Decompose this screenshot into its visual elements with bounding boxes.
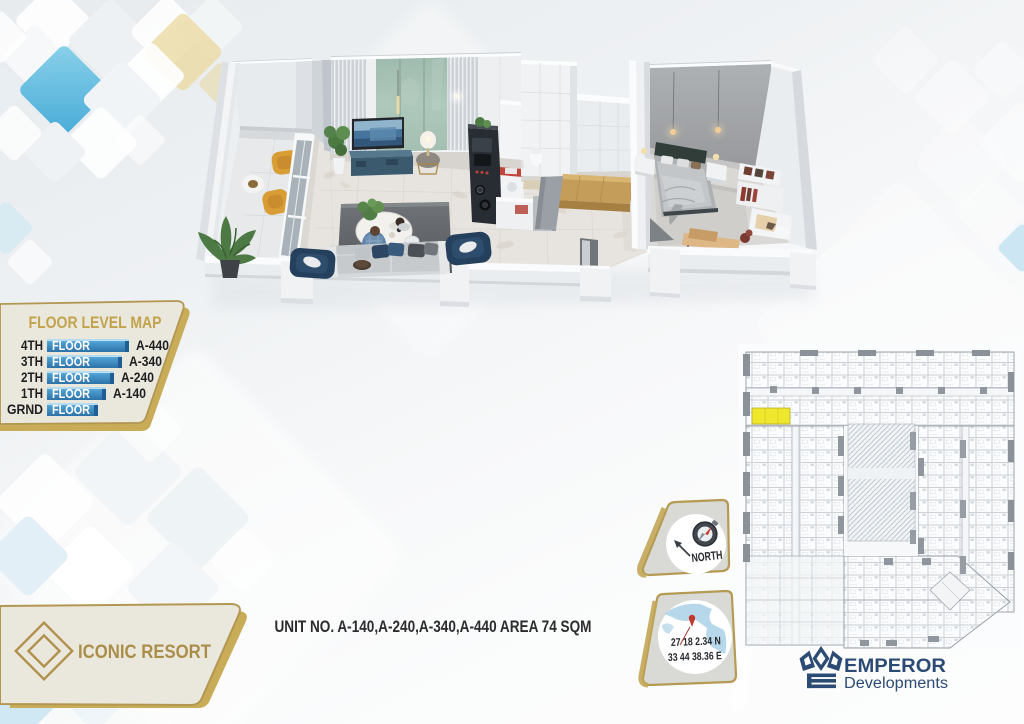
svg-text:A-440: A-440 [136,337,169,353]
svg-text:EMPEROR: EMPEROR [844,656,946,677]
svg-text:FLOOR: FLOOR [52,387,90,401]
svg-text:UNIT NO. A-140,A-240,A-340,A-: UNIT NO. A-140,A-240,A-340,A-440 AREA 74… [275,617,592,636]
svg-text:2TH: 2TH [21,369,43,385]
svg-text:FLOOR LEVEL MAP: FLOOR LEVEL MAP [29,313,162,332]
svg-text:FLOOR: FLOOR [52,371,90,385]
svg-text:A-140: A-140 [113,385,146,401]
svg-text:A-340: A-340 [129,353,162,369]
svg-text:FLOOR: FLOOR [52,339,90,353]
svg-text:33 44 38.36 E: 33 44 38.36 E [668,650,722,664]
svg-text:A-240: A-240 [121,369,154,385]
svg-text:FLOOR: FLOOR [52,355,90,369]
svg-text:GRND: GRND [7,401,43,417]
svg-text:FLOOR: FLOOR [52,403,90,417]
svg-text:Developments: Developments [844,675,948,692]
svg-text:1TH: 1TH [21,385,43,401]
svg-text:27 18 2.34 N: 27 18 2.34 N [671,635,721,649]
svg-text:4TH: 4TH [21,337,43,353]
svg-text:ICONIC RESORT: ICONIC RESORT [78,642,211,663]
svg-text:3TH: 3TH [21,353,43,369]
